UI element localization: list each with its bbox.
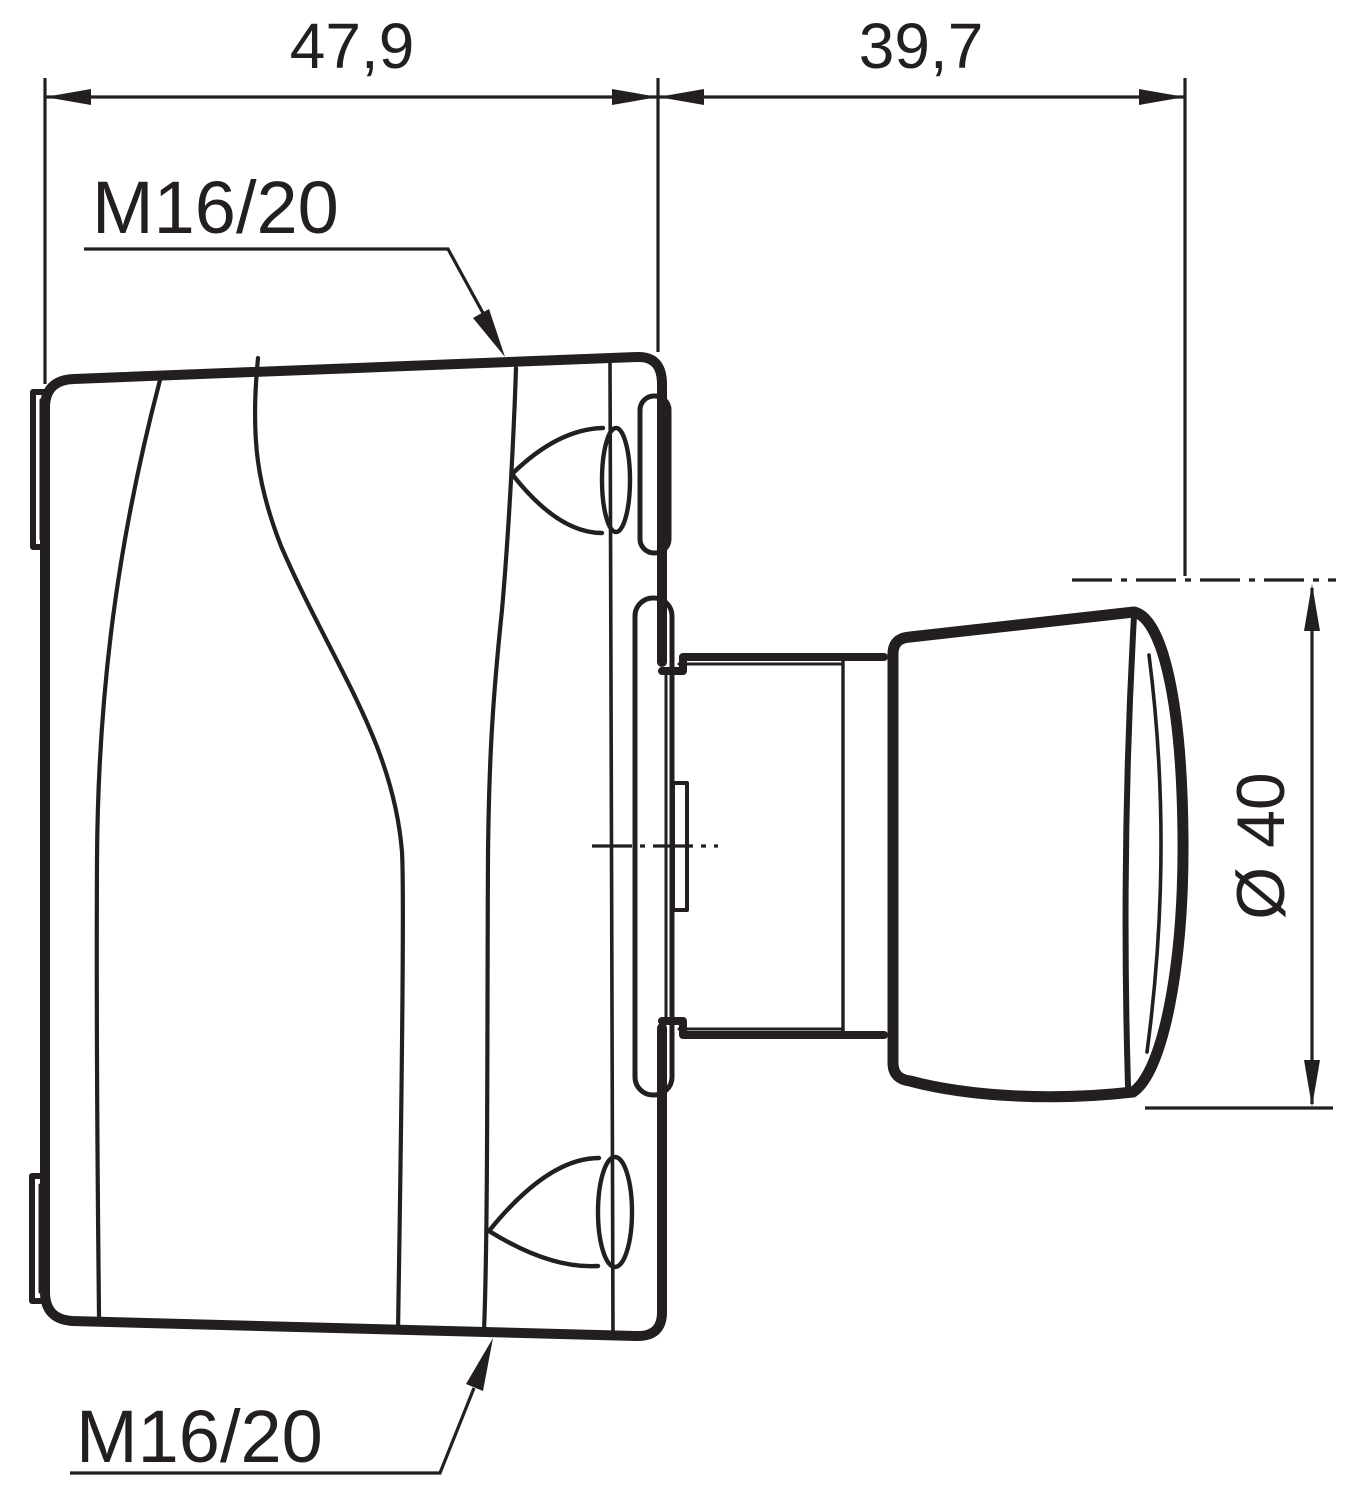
arrow-39-right <box>1139 89 1185 105</box>
gland-label-bottom: M16/20 <box>76 1395 323 1478</box>
arrow-39-left <box>658 89 704 105</box>
button-outline <box>893 612 1183 1097</box>
gland-hole-bottom <box>598 1157 632 1267</box>
dimensional-drawing-svg: 47,9 39,7 Ø 40 M16/20 M16/20 <box>0 0 1363 1500</box>
dimension-housing-width: 47,9 <box>290 10 415 82</box>
arrow-leader-bottom <box>466 1338 493 1391</box>
arrow-47-right <box>612 89 658 105</box>
contour-line-right <box>484 368 516 1331</box>
button-face-highlight <box>1147 655 1161 1052</box>
contour-line-middle <box>255 358 403 1331</box>
leader-line-top <box>84 249 489 324</box>
button-face-line <box>1126 616 1134 1086</box>
gland-cone-top-upper <box>512 428 603 474</box>
gland-cone-bottom-upper <box>489 1158 599 1231</box>
inner-wall-line <box>610 359 613 1338</box>
gland-hole-top <box>602 428 630 532</box>
housing <box>32 357 672 1338</box>
actuator-neck <box>662 657 884 1035</box>
arrow-leader-top <box>473 309 505 357</box>
gland-cone-top-lower <box>512 474 602 533</box>
annotations: 47,9 39,7 Ø 40 M16/20 M16/20 <box>76 10 1299 1478</box>
arrow-dia-bottom <box>1304 1060 1320 1107</box>
arrow-dia-top <box>1304 584 1320 631</box>
gland-label-top: M16/20 <box>92 166 339 249</box>
dimension-button-diameter: Ø 40 <box>1223 772 1299 919</box>
arrow-47-left <box>45 89 91 105</box>
contour-line-left <box>97 380 160 1316</box>
housing-outline <box>45 357 662 1336</box>
gland-cone-bottom-lower <box>489 1231 598 1266</box>
dimension-lines <box>45 78 1336 1473</box>
technical-drawing: 47,9 39,7 Ø 40 M16/20 M16/20 <box>0 0 1363 1500</box>
dimension-button-depth: 39,7 <box>859 10 984 82</box>
mushroom-button <box>893 612 1183 1097</box>
